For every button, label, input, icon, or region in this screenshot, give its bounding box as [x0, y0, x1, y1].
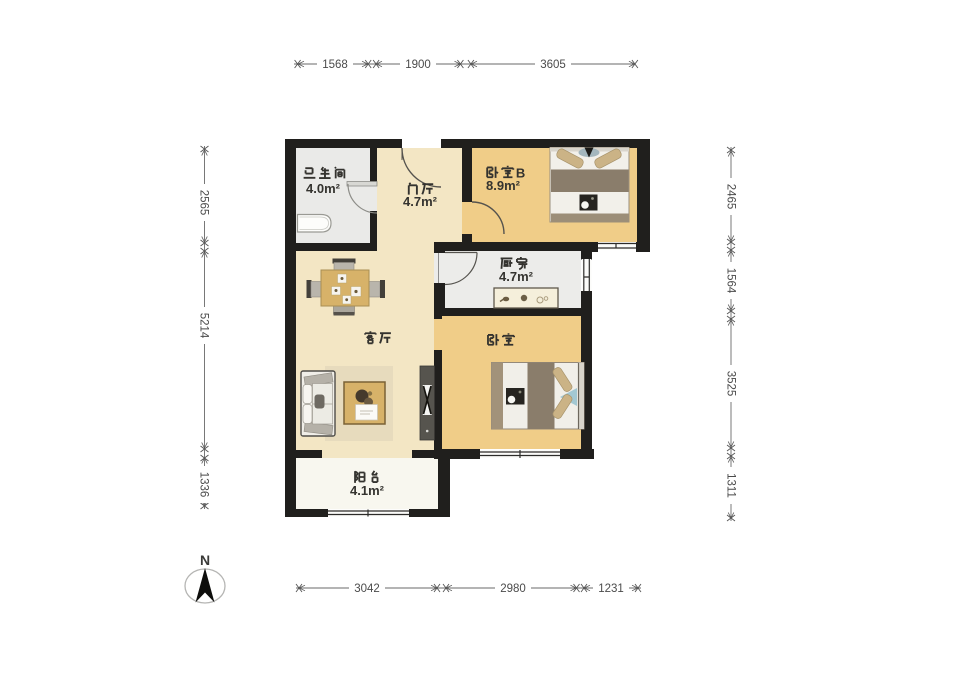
svg-text:1568: 1568: [322, 59, 348, 71]
svg-text:3042: 3042: [354, 583, 380, 595]
svg-text:4.7m²: 4.7m²: [403, 194, 438, 209]
svg-text:4.0m²: 4.0m²: [306, 181, 341, 196]
svg-text:N: N: [200, 552, 210, 568]
svg-text:2465: 2465: [724, 184, 736, 210]
svg-text:3605: 3605: [540, 59, 566, 71]
svg-text:1336: 1336: [198, 472, 210, 498]
svg-text:1231: 1231: [598, 583, 624, 595]
svg-text:1900: 1900: [405, 59, 431, 71]
svg-text:2980: 2980: [500, 583, 526, 595]
svg-text:3525: 3525: [724, 371, 736, 397]
svg-text:2565: 2565: [198, 190, 210, 216]
svg-text:4.1m²: 4.1m²: [350, 483, 385, 498]
svg-text:8.9m²: 8.9m²: [486, 178, 521, 193]
svg-text:1564: 1564: [724, 268, 736, 294]
svg-text:4.7m²: 4.7m²: [499, 269, 534, 284]
svg-text:5214: 5214: [198, 313, 210, 339]
svg-text:1311: 1311: [724, 473, 736, 498]
